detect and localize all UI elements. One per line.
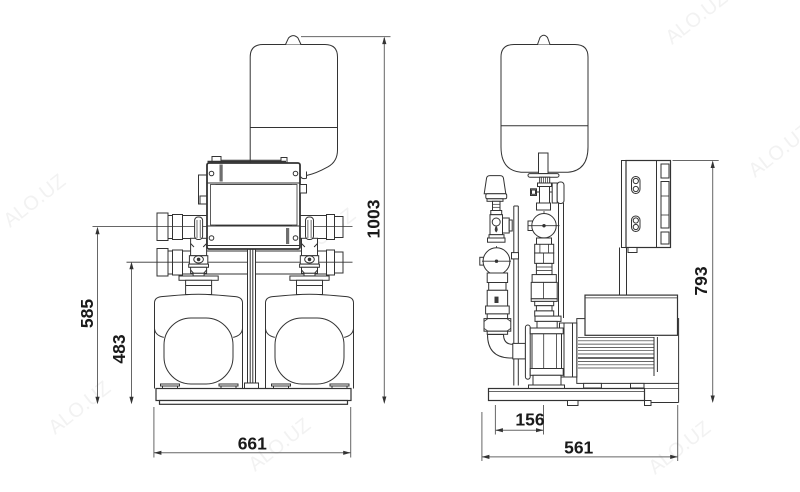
svg-text:ALO.UZ: ALO.UZ [745, 120, 800, 182]
svg-text:483: 483 [109, 334, 129, 363]
svg-text:ALO.UZ: ALO.UZ [645, 417, 715, 479]
svg-text:156: 156 [515, 410, 544, 430]
svg-text:ALO.UZ: ALO.UZ [662, 0, 732, 49]
svg-text:ALO.UZ: ALO.UZ [0, 170, 70, 232]
svg-text:561: 561 [564, 438, 593, 458]
svg-text:ALO.UZ: ALO.UZ [45, 377, 115, 439]
svg-text:585: 585 [77, 299, 97, 328]
svg-text:661: 661 [238, 434, 267, 454]
svg-text:793: 793 [691, 266, 711, 295]
svg-text:1003: 1003 [364, 199, 384, 238]
